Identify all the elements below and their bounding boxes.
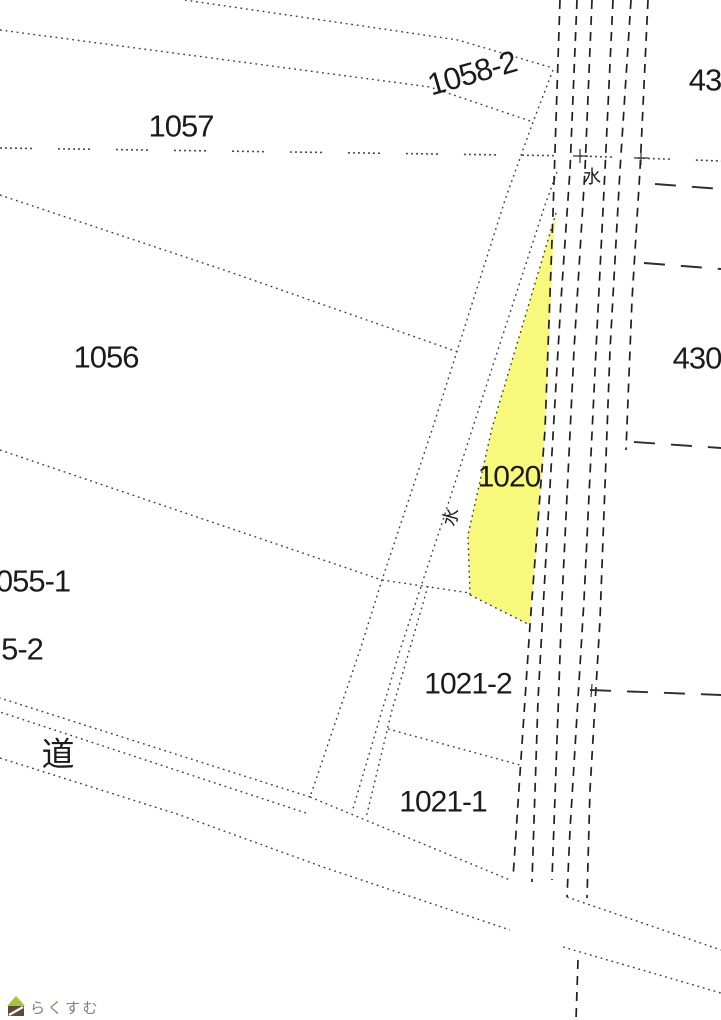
east-dash-row-4: [590, 690, 721, 695]
map-drawing: 1058-210574310564301020055-15-21021-2102…: [0, 0, 721, 1020]
boundary-1056-top: [0, 195, 458, 352]
watermark: らくすむ: [7, 996, 100, 1017]
road-upper-edge: [310, 797, 721, 950]
east-dash-row-1: [655, 184, 721, 189]
watermark-house-roof-icon: [7, 996, 25, 1006]
waterway-line-below-road: [576, 960, 578, 1020]
waterway-line-5: [587, 0, 631, 898]
parcel-label-1021-2: 1021-2: [424, 668, 512, 701]
east-dash-row-3: [634, 442, 721, 448]
parcel-1020-highlight[interactable]: [468, 213, 556, 625]
parcel-label-1058-2: 1058-2: [424, 44, 521, 103]
parcel-label-mizu-upper: 水: [583, 167, 601, 187]
parcel-label-5-2: 5-2: [1, 632, 43, 667]
parcel-label-michi: 道: [42, 736, 75, 773]
cadastral-map: 1058-210574310564301020055-15-21021-2102…: [0, 0, 721, 1020]
parcel-label-430: 430: [673, 341, 721, 376]
parcel-boundaries: [0, 0, 721, 993]
east-dash-row-2: [644, 263, 721, 269]
boundary-1056-bottom: [0, 450, 382, 580]
parcel-label-055-1: 055-1: [0, 564, 70, 599]
boundary-1021-west: [366, 586, 428, 818]
waterway-line-6: [626, 0, 648, 450]
boundary-1021-divider: [388, 729, 520, 765]
watermark-text: らくすむ: [30, 1000, 100, 1017]
parcel-label-1020: 1020: [478, 461, 541, 494]
admin-boundary-line: [0, 148, 721, 161]
parcel-label-43: 43: [689, 63, 721, 98]
parcel-labels: 1058-210574310564301020055-15-21021-2102…: [0, 44, 721, 819]
boundary-cross-strip: [382, 580, 470, 593]
parcel-label-1057: 1057: [149, 109, 214, 144]
road-lower-edge: [0, 758, 721, 993]
parcel-label-1021-1: 1021-1: [399, 786, 487, 819]
parcel-label-mizu-lower: 水: [439, 506, 463, 529]
parcel-label-1056: 1056: [74, 340, 139, 375]
east-dash-boundaries: [590, 184, 721, 695]
